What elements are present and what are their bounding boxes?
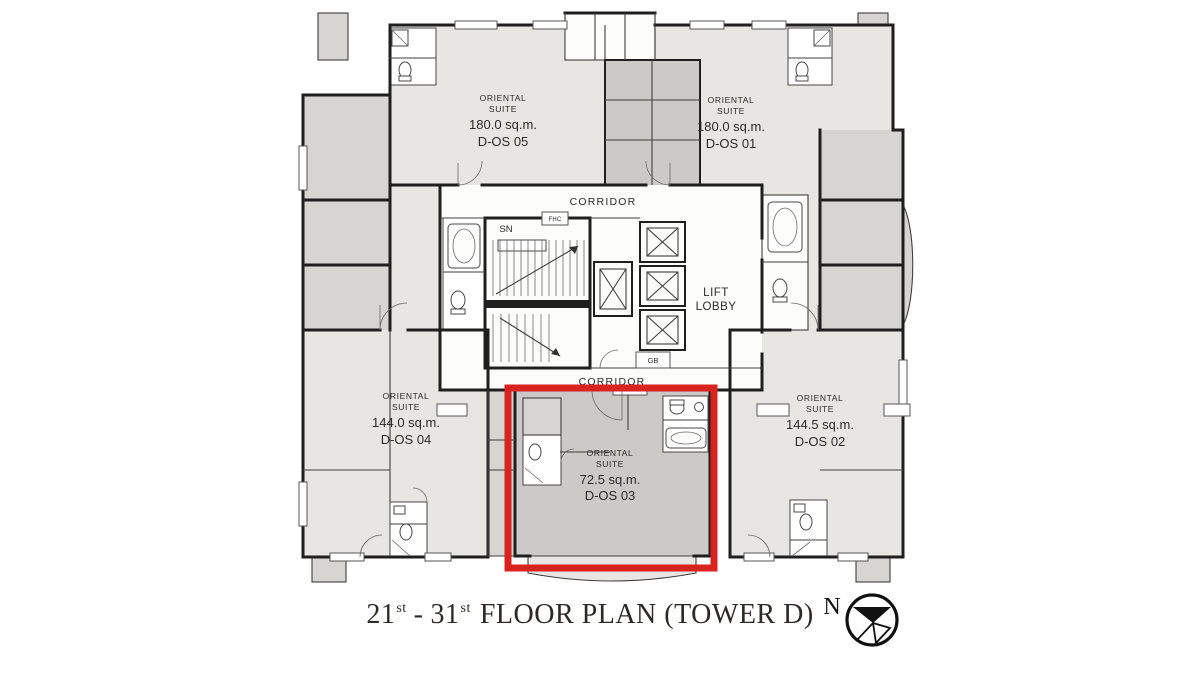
corridor-top-label: CORRIDOR — [570, 196, 637, 208]
left-wing-rooms — [303, 95, 390, 330]
sink-icon — [695, 403, 704, 412]
unit-name-line2: SUITE — [392, 402, 420, 412]
title-rest: FLOOR PLAN (TOWER D) — [480, 599, 814, 630]
unit-name-line2: SUITE — [806, 404, 834, 414]
unit-code: D-OS 04 — [381, 432, 432, 447]
small-bathroom-d-os-03 — [523, 435, 561, 485]
gb-label: GB — [648, 356, 659, 365]
unit-name-line1: ORIENTAL — [797, 393, 844, 403]
unit-area: 72.5 sq.m. — [580, 472, 641, 487]
title-from-superscript: st — [396, 601, 406, 616]
toilet-icon — [451, 291, 465, 309]
closet-d-os-03 — [523, 398, 561, 435]
unit-code: D-OS 03 — [585, 488, 636, 503]
fhc-label: FHC — [549, 217, 562, 223]
toilet-icon — [529, 444, 541, 460]
floor-plan-drawing: ORIENTAL SUITE 180.0 sq.m. D-OS 05 ORIEN… — [0, 0, 1200, 675]
unit-name-line1: ORIENTAL — [480, 93, 527, 103]
right-wing-rooms — [820, 130, 903, 330]
toilet-icon — [400, 524, 412, 540]
floor-plan-page: ORIENTAL SUITE 180.0 sq.m. D-OS 05 ORIEN… — [0, 0, 1200, 675]
unit-d-os-03-label: ORIENTAL SUITE 72.5 sq.m. D-OS 03 — [580, 448, 641, 503]
unit-area: 144.0 sq.m. — [372, 415, 440, 430]
lift-lobby-label-line2: LOBBY — [696, 301, 737, 313]
unit-code: D-OS 05 — [478, 134, 529, 149]
unit-name-line2: SUITE — [717, 106, 745, 116]
unit-name-line1: ORIENTAL — [587, 448, 634, 458]
title-to-floor: 31 — [431, 599, 460, 630]
unit-name-line1: ORIENTAL — [383, 391, 430, 401]
title-from-floor: 21 — [366, 599, 395, 630]
unit-code: D-OS 01 — [706, 136, 757, 151]
top-service-rooms — [565, 13, 655, 60]
toilet-icon — [773, 279, 787, 297]
corner-block-top-left — [318, 13, 348, 60]
unit-area: 180.0 sq.m. — [469, 117, 537, 132]
unit-name-line2: SUITE — [489, 104, 517, 114]
unit-name-line1: ORIENTAL — [708, 95, 755, 105]
unit-area: 180.0 sq.m. — [697, 119, 765, 134]
unit-d-os-05-hall — [390, 185, 440, 330]
stair-landing-wall — [485, 300, 590, 308]
title-separator: - — [414, 599, 424, 630]
lift-lobby-label-line1: LIFT — [703, 287, 729, 299]
sn-label: SN — [499, 224, 512, 235]
title-to-superscript: st — [461, 601, 471, 616]
unit-name-line2: SUITE — [596, 459, 624, 469]
sn-shelf — [498, 240, 546, 251]
plan-title: 21st-31stFLOOR PLAN (TOWER D) — [260, 599, 920, 631]
unit-code: D-OS 02 — [795, 434, 846, 449]
unit-area: 144.5 sq.m. — [786, 417, 854, 432]
toilet-icon — [800, 514, 812, 530]
